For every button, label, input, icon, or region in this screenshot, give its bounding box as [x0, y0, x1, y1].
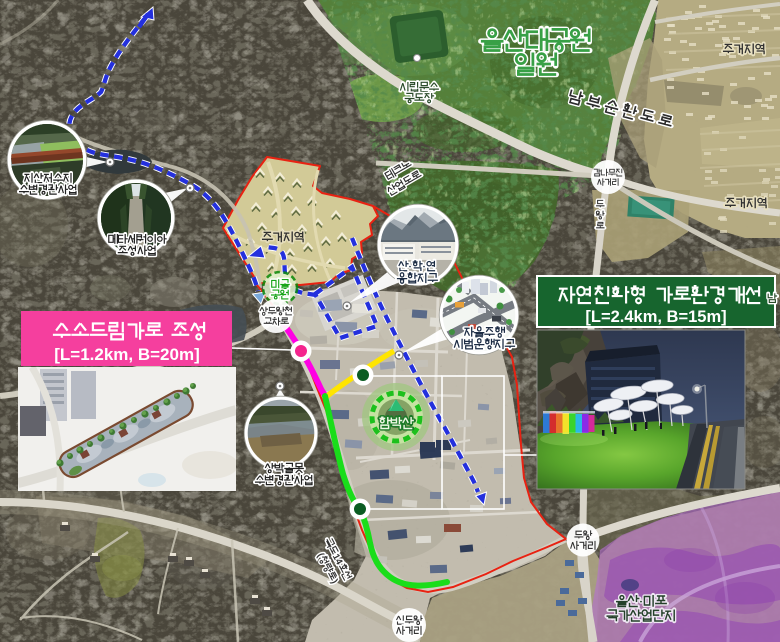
- svg-text:[L=1.2km, B=20m]: [L=1.2km, B=20m]: [54, 345, 200, 364]
- svg-text:[L=2.4km, B=15m]: [L=2.4km, B=15m]: [585, 308, 726, 326]
